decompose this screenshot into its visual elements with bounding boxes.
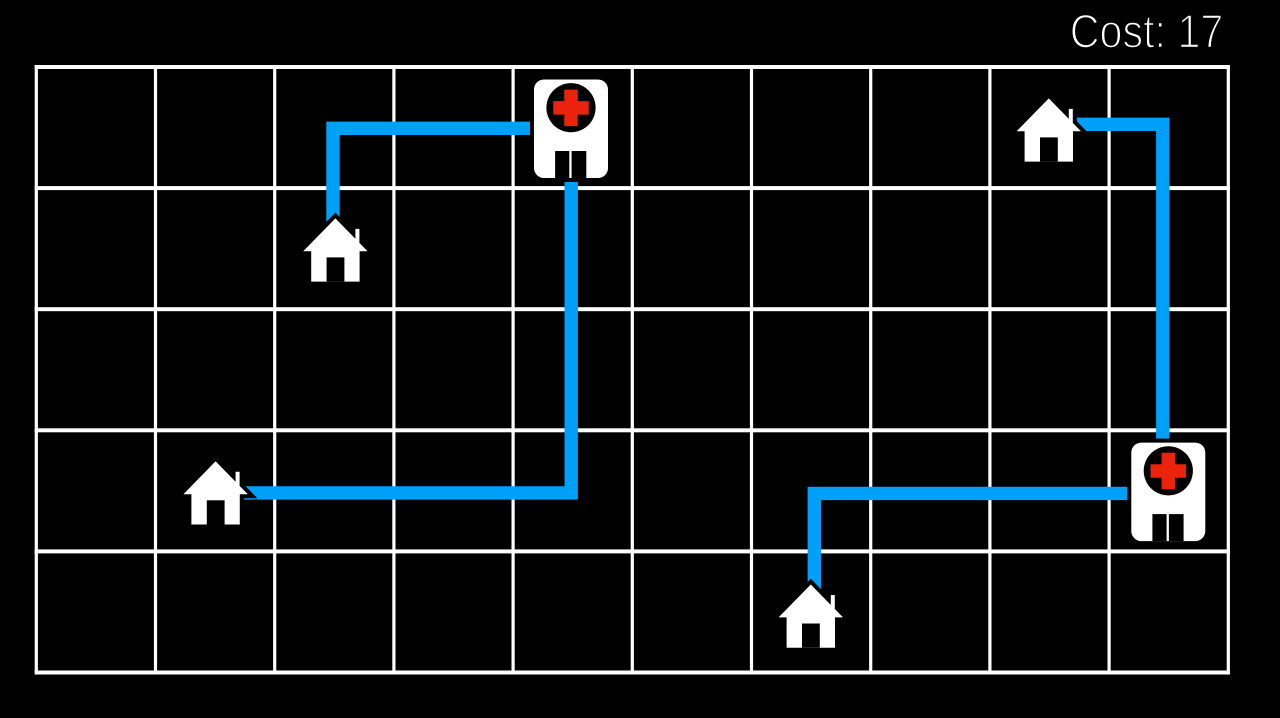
svg-text:Cost: 17: Cost: 17 xyxy=(1070,5,1224,58)
